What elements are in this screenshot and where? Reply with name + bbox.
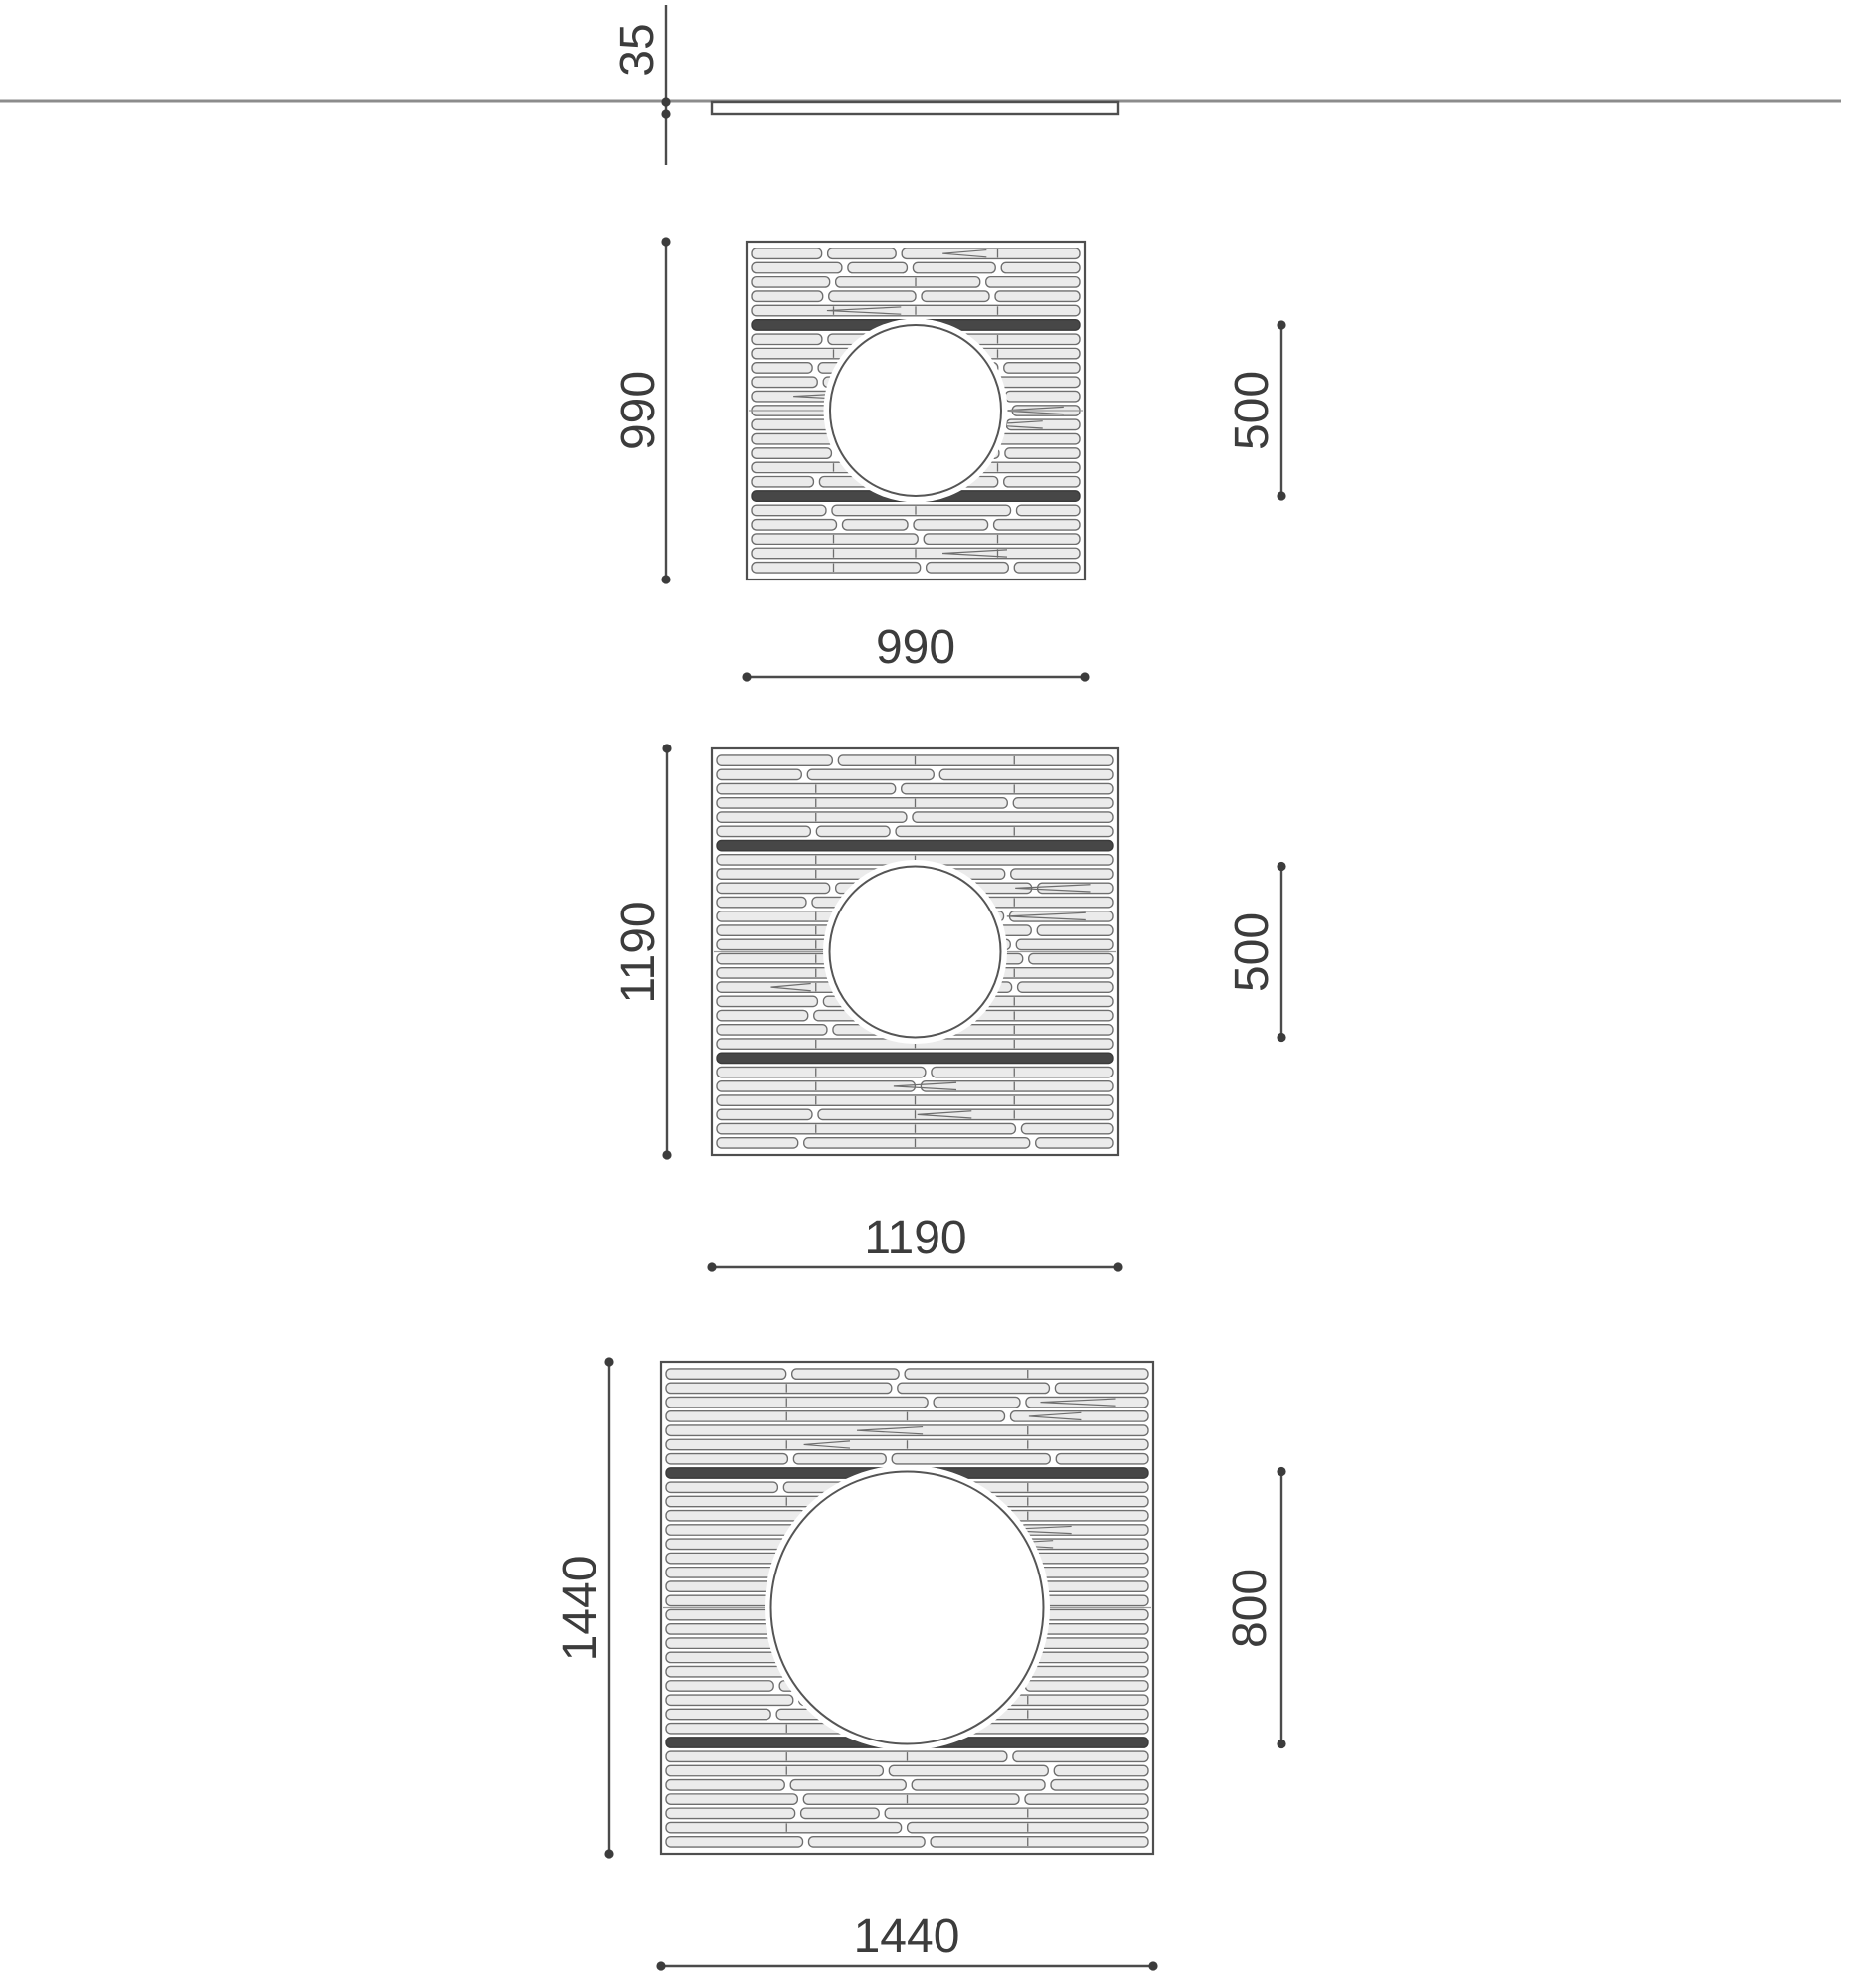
slat bbox=[752, 334, 822, 344]
slat bbox=[885, 1808, 1148, 1818]
slat bbox=[717, 812, 907, 822]
slat bbox=[1029, 953, 1113, 963]
slat bbox=[666, 1525, 803, 1535]
slat bbox=[666, 1454, 787, 1464]
dimension-dot bbox=[661, 237, 670, 246]
slat bbox=[934, 1397, 1020, 1407]
slat bbox=[717, 1010, 808, 1020]
slat bbox=[717, 897, 806, 907]
slat bbox=[717, 1123, 1015, 1133]
slat bbox=[717, 1109, 812, 1119]
dimension-dot bbox=[604, 1357, 613, 1366]
slat bbox=[1034, 1652, 1148, 1662]
slat bbox=[912, 1780, 1045, 1790]
slat bbox=[752, 448, 831, 458]
slat bbox=[1036, 1138, 1113, 1148]
slat bbox=[1025, 1794, 1148, 1804]
dimension-dot bbox=[661, 575, 670, 583]
slat bbox=[994, 520, 1080, 530]
slat bbox=[1017, 505, 1080, 515]
slat bbox=[752, 520, 836, 530]
dimension-dot bbox=[604, 1849, 613, 1858]
slat bbox=[666, 1780, 784, 1790]
grate-990-hole-label: 500 bbox=[1226, 371, 1278, 450]
slat bbox=[801, 1808, 880, 1818]
slat bbox=[666, 1751, 1007, 1761]
grate-1190-top-view: 1190 1190 500 bbox=[612, 744, 1286, 1271]
slat bbox=[939, 769, 1113, 779]
profile-side-view bbox=[0, 5, 1841, 165]
slat bbox=[913, 812, 1113, 822]
slat bbox=[1014, 563, 1080, 573]
slat bbox=[807, 769, 934, 779]
grate-1190-height-label: 1190 bbox=[612, 901, 665, 1003]
slat bbox=[1032, 1568, 1148, 1577]
slat bbox=[1054, 1765, 1148, 1775]
grate-1440-width-label: 1440 bbox=[854, 1910, 960, 1963]
slat bbox=[889, 1765, 1048, 1775]
slat bbox=[994, 377, 1080, 387]
slat bbox=[1021, 1525, 1148, 1535]
dimension-dot bbox=[1277, 1739, 1285, 1748]
slat bbox=[892, 1454, 1050, 1464]
slat bbox=[1004, 363, 1080, 373]
grate-1440-hole-label: 800 bbox=[1224, 1569, 1277, 1648]
slat bbox=[666, 1425, 1148, 1435]
slat bbox=[1016, 939, 1113, 949]
slat bbox=[752, 248, 822, 258]
slat bbox=[914, 520, 988, 530]
slat bbox=[838, 755, 1113, 765]
slat bbox=[804, 1138, 1030, 1148]
dimension-dot bbox=[661, 97, 670, 106]
slat bbox=[1005, 391, 1080, 401]
slat bbox=[1005, 448, 1080, 458]
slat bbox=[752, 534, 918, 544]
slat bbox=[898, 1383, 1050, 1393]
slat bbox=[1006, 419, 1080, 429]
slat bbox=[717, 1067, 926, 1077]
slat bbox=[666, 1397, 928, 1407]
slat bbox=[717, 996, 817, 1006]
slat bbox=[913, 262, 995, 272]
slat bbox=[717, 826, 810, 836]
slat bbox=[932, 1067, 1113, 1077]
slat-pattern bbox=[662, 744, 1285, 1271]
slat bbox=[666, 1808, 795, 1818]
tree-hole-halo bbox=[771, 1472, 1044, 1744]
slat-pattern bbox=[661, 237, 1285, 681]
slat bbox=[666, 1695, 793, 1705]
dimension-dot bbox=[662, 744, 671, 752]
slat bbox=[717, 755, 832, 765]
grate-990-top-view: 990 990 500 bbox=[612, 237, 1286, 681]
slat bbox=[828, 248, 897, 258]
slat bbox=[793, 1454, 886, 1464]
slat bbox=[902, 248, 1080, 258]
slat bbox=[1051, 1780, 1148, 1790]
slat bbox=[1011, 869, 1113, 879]
slat bbox=[666, 1383, 892, 1393]
slat bbox=[832, 505, 1011, 515]
slat bbox=[1025, 1681, 1148, 1691]
slat bbox=[717, 1053, 1113, 1063]
grate-990-width-label: 990 bbox=[876, 621, 955, 674]
slat bbox=[1056, 1454, 1148, 1464]
grate-1440-height-label: 1440 bbox=[554, 1556, 606, 1662]
grate-990-height-label: 990 bbox=[612, 371, 665, 450]
tree-grate-dimension-drawing: 35 990 990 500 1190 1190 500 1440 1440 8… bbox=[0, 0, 1874, 1988]
grate-profile-slab bbox=[712, 102, 1118, 114]
slat bbox=[896, 826, 1113, 836]
dimension-dot bbox=[1277, 1467, 1285, 1476]
slat bbox=[842, 520, 908, 530]
dimension-dot bbox=[1080, 672, 1089, 681]
slat bbox=[666, 1511, 805, 1521]
slat bbox=[924, 534, 1080, 544]
slat bbox=[666, 1681, 773, 1691]
slat bbox=[752, 505, 826, 515]
slat bbox=[752, 277, 830, 287]
slat bbox=[816, 826, 890, 836]
slat bbox=[1001, 262, 1080, 272]
slat bbox=[931, 1837, 1148, 1847]
slat bbox=[717, 1138, 798, 1148]
slat bbox=[752, 477, 813, 487]
slat bbox=[809, 1837, 926, 1847]
slat bbox=[1021, 1123, 1113, 1133]
slat bbox=[1004, 477, 1080, 487]
slat bbox=[666, 1482, 777, 1492]
dimension-dot bbox=[662, 1150, 671, 1159]
slat bbox=[1013, 798, 1113, 808]
grate-1440-top-view: 1440 1440 800 bbox=[554, 1357, 1286, 1970]
drawing-canvas: 35 990 990 500 1190 1190 500 1440 1440 8… bbox=[0, 0, 1874, 1988]
dimension-dot bbox=[661, 109, 670, 118]
slat bbox=[995, 291, 1080, 301]
dimension-dot bbox=[1277, 862, 1285, 871]
slat bbox=[848, 262, 908, 272]
dimension-dot bbox=[707, 1262, 716, 1271]
slat bbox=[1055, 1383, 1148, 1393]
dimension-dot bbox=[1277, 320, 1285, 329]
slat bbox=[803, 1794, 1019, 1804]
slat bbox=[1018, 982, 1113, 992]
dimension-dot bbox=[1148, 1961, 1157, 1970]
slat bbox=[1038, 883, 1113, 893]
dimension-dot bbox=[742, 672, 751, 681]
slat bbox=[666, 1568, 785, 1577]
slat bbox=[752, 262, 842, 272]
slat bbox=[1037, 925, 1113, 935]
slat bbox=[717, 783, 896, 793]
slat bbox=[752, 291, 823, 301]
slat bbox=[752, 563, 921, 573]
slat bbox=[666, 1837, 803, 1847]
slat bbox=[666, 1411, 1004, 1421]
slat bbox=[790, 1780, 906, 1790]
slat bbox=[752, 377, 817, 387]
slat bbox=[717, 840, 1113, 850]
slat bbox=[666, 1539, 794, 1549]
slat bbox=[666, 1765, 883, 1775]
slat bbox=[836, 277, 980, 287]
slat bbox=[717, 1025, 827, 1035]
slat bbox=[666, 1822, 902, 1832]
slat bbox=[829, 291, 916, 301]
slat bbox=[986, 277, 1080, 287]
slat bbox=[922, 291, 989, 301]
slat bbox=[1013, 1751, 1148, 1761]
dimension-dot bbox=[1277, 491, 1285, 500]
dimension-dot bbox=[656, 1961, 665, 1970]
slat-pattern bbox=[604, 1357, 1285, 1970]
thickness-label: 35 bbox=[611, 23, 664, 76]
dimension-dot bbox=[1113, 1262, 1122, 1271]
slat bbox=[666, 1369, 786, 1379]
slat bbox=[905, 1369, 1148, 1379]
slat bbox=[902, 783, 1113, 793]
slat bbox=[752, 363, 812, 373]
grate-1190-width-label: 1190 bbox=[864, 1212, 966, 1264]
dimension-dot bbox=[1277, 1033, 1285, 1042]
slat bbox=[1010, 911, 1113, 921]
slat bbox=[717, 883, 830, 893]
slat bbox=[927, 563, 1009, 573]
slat bbox=[666, 1794, 797, 1804]
slat bbox=[717, 798, 1007, 808]
slat bbox=[717, 769, 801, 779]
grate-1190-hole-label: 500 bbox=[1226, 912, 1278, 992]
slat bbox=[666, 1709, 770, 1719]
slat bbox=[792, 1369, 899, 1379]
